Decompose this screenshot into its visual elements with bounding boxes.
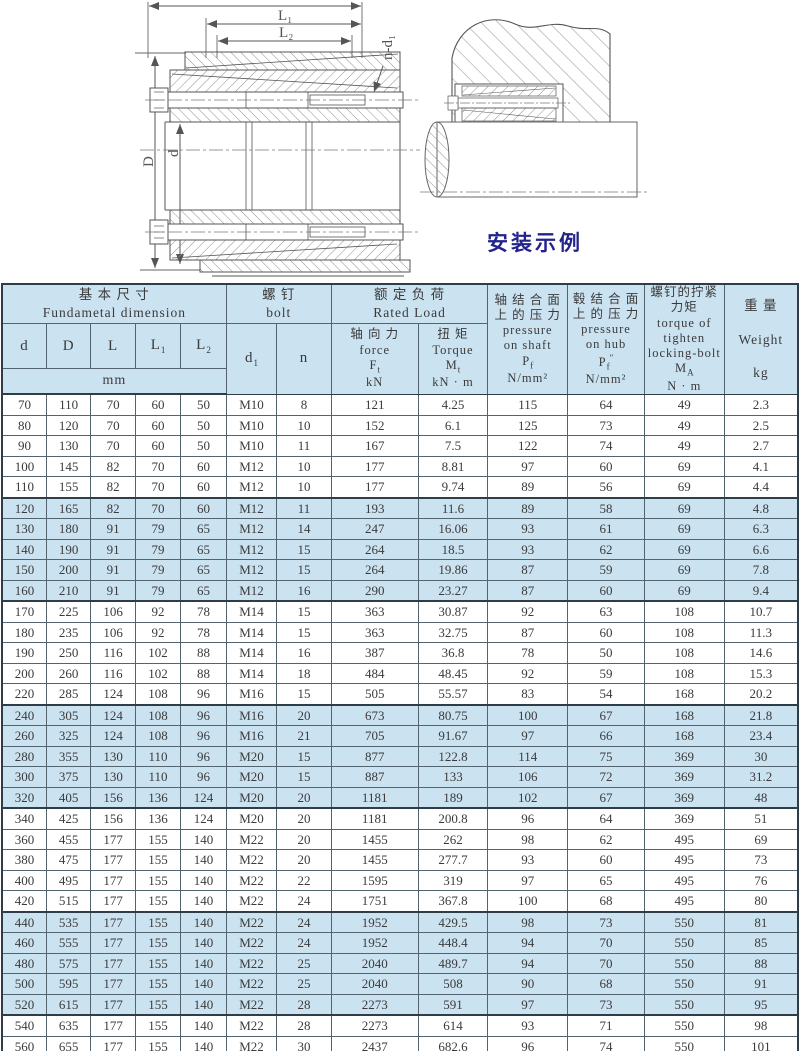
table-cell: 124 — [91, 726, 135, 747]
table-cell: 64 — [568, 808, 645, 829]
table-cell: 2.7 — [724, 436, 798, 457]
header-col-D: D — [46, 324, 90, 369]
table-cell: M22 — [226, 974, 277, 995]
table-cell: M22 — [226, 1036, 277, 1051]
table-cell: 15 — [277, 560, 332, 581]
table-row: 110155827060M12101779.748956694.4 — [2, 477, 798, 498]
table-cell: 11 — [277, 436, 332, 457]
table-cell: M20 — [226, 787, 277, 808]
table-row: 460555177155140M22241952448.4947055085 — [2, 933, 798, 954]
table-cell: 91 — [91, 539, 135, 560]
table-cell: 6.3 — [724, 519, 798, 540]
table-cell: 76 — [724, 870, 798, 891]
dim-label-D: D — [141, 156, 157, 167]
table-cell: 136 — [135, 808, 180, 829]
table-cell: 20 — [277, 705, 332, 726]
table-cell: 64 — [568, 394, 645, 415]
table-cell: 10.7 — [724, 601, 798, 622]
table-cell: 124 — [91, 705, 135, 726]
table-cell: 79 — [135, 580, 180, 601]
table-cell: 277.7 — [418, 850, 488, 871]
table-cell: 10 — [277, 456, 332, 477]
table-cell: 80 — [2, 415, 46, 436]
table-cell: M22 — [226, 829, 277, 850]
table-cell: 475 — [46, 850, 90, 871]
table-row: 500595177155140M22252040508906855091 — [2, 974, 798, 995]
table-cell: 140 — [181, 912, 226, 933]
table-cell: 18.5 — [418, 539, 488, 560]
table-cell: 305 — [46, 705, 90, 726]
table-cell: 489.7 — [418, 953, 488, 974]
table-cell: 70 — [91, 394, 135, 415]
table-cell: M12 — [226, 477, 277, 498]
table-cell: 140 — [181, 870, 226, 891]
table-cell: 240 — [2, 705, 46, 726]
table-row: 360455177155140M22201455262986249569 — [2, 829, 798, 850]
table-cell: 360 — [2, 829, 46, 850]
table-cell: 108 — [644, 622, 724, 643]
table-cell: 614 — [418, 1015, 488, 1036]
table-cell: 20 — [277, 850, 332, 871]
table-cell: 1455 — [331, 829, 418, 850]
table-cell: 87 — [488, 560, 568, 581]
table-cell: 177 — [91, 891, 135, 912]
table-cell: 140 — [181, 1015, 226, 1036]
table-cell: 73 — [724, 850, 798, 871]
table-cell: 363 — [331, 601, 418, 622]
table-cell: 125 — [488, 415, 568, 436]
table-cell: 210 — [46, 580, 90, 601]
table-cell: 155 — [135, 953, 180, 974]
table-cell: 79 — [135, 560, 180, 581]
table-cell: 70 — [2, 394, 46, 415]
table-cell: M22 — [226, 870, 277, 891]
table-cell: 15 — [277, 767, 332, 788]
table-cell: 133 — [418, 767, 488, 788]
table-cell: 425 — [46, 808, 90, 829]
table-row: 520615177155140M22282273591977355095 — [2, 994, 798, 1015]
table-cell: 25 — [277, 974, 332, 995]
table-cell: 87 — [488, 622, 568, 643]
table-cell: 108 — [135, 726, 180, 747]
table-cell: M16 — [226, 726, 277, 747]
table-cell: M12 — [226, 539, 277, 560]
table-cell: 92 — [488, 601, 568, 622]
table-cell: 106 — [91, 622, 135, 643]
table-cell: 69 — [644, 519, 724, 540]
table-cell: 96 — [181, 726, 226, 747]
table-cell: 193 — [331, 498, 418, 519]
table-cell: 177 — [91, 870, 135, 891]
table-cell: 4.8 — [724, 498, 798, 519]
table-row: 150200917965M121526419.868759697.8 — [2, 560, 798, 581]
table-cell: 280 — [2, 746, 46, 767]
table-cell: 65 — [181, 519, 226, 540]
table-cell: 110 — [46, 394, 90, 415]
table-cell: 79 — [135, 539, 180, 560]
table-cell: 320 — [2, 787, 46, 808]
table-cell: 82 — [91, 477, 135, 498]
table-cell: 93 — [488, 850, 568, 871]
table-cell: 65 — [181, 580, 226, 601]
table-cell: 115 — [488, 394, 568, 415]
table-cell: 705 — [331, 726, 418, 747]
table-cell: 92 — [135, 601, 180, 622]
table-cell: 515 — [46, 891, 90, 912]
table-cell: 19.86 — [418, 560, 488, 581]
table-cell: 15 — [277, 539, 332, 560]
table-cell: 85 — [724, 933, 798, 954]
table-cell: 97 — [488, 870, 568, 891]
table-cell: 122.8 — [418, 746, 488, 767]
table-cell: 508 — [418, 974, 488, 995]
table-cell: 49 — [644, 415, 724, 436]
table-cell: 70 — [568, 953, 645, 974]
table-cell: 11.3 — [724, 622, 798, 643]
table-cell: 108 — [135, 705, 180, 726]
table-cell: 369 — [644, 767, 724, 788]
table-cell: 106 — [91, 601, 135, 622]
table-cell: 595 — [46, 974, 90, 995]
table-cell: 24 — [277, 891, 332, 912]
table-cell: 94 — [488, 953, 568, 974]
table-cell: 15 — [277, 684, 332, 705]
table-cell: 500 — [2, 974, 46, 995]
table-cell: 200 — [2, 663, 46, 684]
table-cell: 550 — [644, 953, 724, 974]
table-cell: 124 — [91, 684, 135, 705]
table-cell: 363 — [331, 622, 418, 643]
table-cell: 80 — [724, 891, 798, 912]
table-cell: 93 — [488, 519, 568, 540]
table-cell: 8 — [277, 394, 332, 415]
table-cell: 20 — [277, 829, 332, 850]
table-cell: 122 — [488, 436, 568, 457]
table-cell: 89 — [488, 477, 568, 498]
table-cell: 59 — [568, 663, 645, 684]
table-cell: 28 — [277, 1015, 332, 1036]
table-cell: 71 — [568, 1015, 645, 1036]
table-cell: 116 — [91, 663, 135, 684]
table-cell: 69 — [644, 477, 724, 498]
table-cell: 32.75 — [418, 622, 488, 643]
table-cell: 140 — [181, 1036, 226, 1051]
table-cell: 108 — [644, 663, 724, 684]
table-cell: 73 — [568, 994, 645, 1015]
table-cell: 74 — [568, 436, 645, 457]
table-cell: 91 — [91, 580, 135, 601]
table-cell: 505 — [331, 684, 418, 705]
table-cell: 319 — [418, 870, 488, 891]
table-cell: 120 — [46, 415, 90, 436]
table-row: 28035513011096M2015877122.81147536930 — [2, 746, 798, 767]
specification-table: 基 本 尺 寸Fundametal dimension 螺 钉bolt 额 定 … — [1, 283, 799, 1051]
table-cell: 97 — [488, 726, 568, 747]
table-cell: 1455 — [331, 850, 418, 871]
table-cell: 11.6 — [418, 498, 488, 519]
table-cell: 177 — [91, 953, 135, 974]
table-cell: 130 — [91, 767, 135, 788]
table-cell: 20.2 — [724, 684, 798, 705]
table-cell: 7.8 — [724, 560, 798, 581]
header-col-n: n — [277, 324, 332, 395]
table-cell: 65 — [181, 539, 226, 560]
table-cell: 90 — [2, 436, 46, 457]
table-cell: 65 — [568, 870, 645, 891]
table-cell: 168 — [644, 726, 724, 747]
table-cell: 429.5 — [418, 912, 488, 933]
table-cell: 70 — [135, 498, 180, 519]
table-cell: 50 — [181, 394, 226, 415]
table-cell: 68 — [568, 974, 645, 995]
table-cell: 110 — [135, 767, 180, 788]
table-cell: 400 — [2, 870, 46, 891]
table-row: 80120706050M10101526.112573492.5 — [2, 415, 798, 436]
table-row: 22028512410896M161550555.57835416820.2 — [2, 684, 798, 705]
table-cell: 93 — [488, 539, 568, 560]
table-cell: 24 — [277, 933, 332, 954]
header-col-pressure-on-hub: 毂 结 合 面上 的 压 力pressureon hubPf″N/mm² — [568, 284, 645, 394]
datasheet-page: L₁ L₂ n-d₁ D d — [0, 0, 800, 1051]
table-cell: 6.1 — [418, 415, 488, 436]
installation-example-drawing: 安装示例 — [420, 20, 648, 255]
table-cell: 340 — [2, 808, 46, 829]
table-cell: M16 — [226, 705, 277, 726]
table-cell: 16 — [277, 643, 332, 664]
table-cell: M22 — [226, 891, 277, 912]
table-cell: 78 — [488, 643, 568, 664]
table-cell: 108 — [644, 643, 724, 664]
table-cell: 50 — [181, 436, 226, 457]
table-cell: 495 — [46, 870, 90, 891]
table-cell: M16 — [226, 684, 277, 705]
table-cell: 15 — [277, 601, 332, 622]
table-cell: M22 — [226, 1015, 277, 1036]
table-cell: 102 — [135, 643, 180, 664]
table-cell: 152 — [331, 415, 418, 436]
table-row: 1802351069278M141536332.75876010811.3 — [2, 622, 798, 643]
table-cell: 220 — [2, 684, 46, 705]
table-cell: M10 — [226, 394, 277, 415]
assembly-cross-section-drawing: L₁ L₂ n-d₁ D d — [135, 2, 420, 276]
table-row: 20026011610288M141848448.45925910815.3 — [2, 663, 798, 684]
table-cell: 50 — [568, 643, 645, 664]
table-row: 130180917965M121424716.069361696.3 — [2, 519, 798, 540]
header-col-L1: L1 — [135, 324, 180, 369]
table-cell: 23.27 — [418, 580, 488, 601]
table-cell: 262 — [418, 829, 488, 850]
table-cell: 177 — [331, 477, 418, 498]
table-row: 30037513011096M20158871331067236931.2 — [2, 767, 798, 788]
table-cell: 30.87 — [418, 601, 488, 622]
table-cell: 177 — [91, 850, 135, 871]
header-col-L: L — [91, 324, 135, 369]
table-cell: 140 — [181, 974, 226, 995]
table-row: 100145827060M12101778.819760694.1 — [2, 456, 798, 477]
table-cell: 108 — [644, 601, 724, 622]
table-cell: 62 — [568, 829, 645, 850]
table-cell: 2273 — [331, 1015, 418, 1036]
table-cell: 1952 — [331, 933, 418, 954]
dim-label-l1: L₁ — [278, 8, 292, 24]
installation-example-caption: 安装示例 — [487, 231, 583, 255]
table-cell: 18 — [277, 663, 332, 684]
table-cell: 155 — [135, 933, 180, 954]
table-cell: M14 — [226, 622, 277, 643]
table-cell: 235 — [46, 622, 90, 643]
table-cell: 550 — [644, 912, 724, 933]
table-cell: 1595 — [331, 870, 418, 891]
table-cell: 140 — [181, 994, 226, 1015]
table-cell: 16.06 — [418, 519, 488, 540]
table-cell: 96 — [181, 767, 226, 788]
table-cell: 887 — [331, 767, 418, 788]
table-cell: 73 — [568, 415, 645, 436]
table-cell: 1181 — [331, 787, 418, 808]
table-cell: 260 — [2, 726, 46, 747]
table-cell: 98 — [724, 1015, 798, 1036]
table-cell: 300 — [2, 767, 46, 788]
table-cell: 20 — [277, 808, 332, 829]
table-cell: M22 — [226, 850, 277, 871]
header-col-d: d — [2, 324, 46, 369]
table-cell: 16 — [277, 580, 332, 601]
table-cell: 63 — [568, 601, 645, 622]
table-cell: M22 — [226, 994, 277, 1015]
table-cell: M14 — [226, 663, 277, 684]
header-unit-mm: mm — [2, 369, 226, 395]
table-cell: 78 — [181, 622, 226, 643]
table-cell: 97 — [488, 994, 568, 1015]
table-cell: 369 — [644, 787, 724, 808]
header-col-tighten-torque: 螺钉的拧紧力矩torque oftightenlocking-boltMAN ·… — [644, 284, 724, 394]
table-row: 26032512410896M162170591.67976616823.4 — [2, 726, 798, 747]
table-cell: M12 — [226, 456, 277, 477]
table-cell: 10 — [277, 477, 332, 498]
table-cell: 15 — [277, 746, 332, 767]
table-cell: M14 — [226, 643, 277, 664]
table-cell: 89 — [488, 498, 568, 519]
table-cell: 74 — [568, 1036, 645, 1051]
header-col-d1: d1 — [226, 324, 277, 395]
table-cell: 168 — [644, 684, 724, 705]
table-cell: 96 — [488, 1036, 568, 1051]
table-cell: 101 — [724, 1036, 798, 1051]
table-cell: 375 — [46, 767, 90, 788]
dim-label-l2: L₂ — [279, 25, 293, 41]
table-cell: 2273 — [331, 994, 418, 1015]
table-cell: 155 — [46, 477, 90, 498]
table-cell: 355 — [46, 746, 90, 767]
table-cell: M12 — [226, 519, 277, 540]
table-row: 440535177155140M22241952429.5987355081 — [2, 912, 798, 933]
table-cell: 177 — [91, 933, 135, 954]
table-cell: 68 — [568, 891, 645, 912]
table-cell: 65 — [181, 560, 226, 581]
table-cell: 69 — [644, 560, 724, 581]
table-cell: M20 — [226, 767, 277, 788]
table-cell: 22 — [277, 870, 332, 891]
table-cell: 150 — [2, 560, 46, 581]
table-cell: 59 — [568, 560, 645, 581]
table-cell: 155 — [135, 974, 180, 995]
table-cell: 495 — [644, 891, 724, 912]
table-cell: 285 — [46, 684, 90, 705]
table-cell: 20 — [277, 787, 332, 808]
table-cell: 82 — [91, 498, 135, 519]
table-cell: 484 — [331, 663, 418, 684]
table-cell: 56 — [568, 477, 645, 498]
header-group-rated-load: 额 定 负 荷Rated Load — [331, 284, 488, 324]
table-cell: 540 — [2, 1015, 46, 1036]
table-cell: 60 — [568, 456, 645, 477]
table-cell: 136 — [135, 787, 180, 808]
table-cell: 9.74 — [418, 477, 488, 498]
table-row: 320405156136124M202011811891026736948 — [2, 787, 798, 808]
table-cell: 73 — [568, 912, 645, 933]
table-cell: 156 — [91, 787, 135, 808]
table-cell: 520 — [2, 994, 46, 1015]
table-cell: 591 — [418, 994, 488, 1015]
table-cell: 60 — [181, 477, 226, 498]
table-cell: 140 — [181, 933, 226, 954]
table-cell: 88 — [724, 953, 798, 974]
table-cell: 177 — [91, 974, 135, 995]
table-cell: 655 — [46, 1036, 90, 1051]
table-cell: 250 — [46, 643, 90, 664]
table-cell: 7.5 — [418, 436, 488, 457]
table-cell: 11 — [277, 498, 332, 519]
table-cell: 25 — [277, 953, 332, 974]
table-cell: 155 — [135, 891, 180, 912]
table-cell: 91.67 — [418, 726, 488, 747]
table-cell: 8.81 — [418, 456, 488, 477]
table-cell: 495 — [644, 850, 724, 871]
header-col-torque: 扭 矩TorqueMtkN · m — [418, 324, 488, 395]
table-cell: 140 — [181, 891, 226, 912]
table-cell: 155 — [135, 1036, 180, 1051]
table-cell: 4.4 — [724, 477, 798, 498]
table-cell: 60 — [135, 436, 180, 457]
table-cell: 48 — [724, 787, 798, 808]
table-cell: 55.57 — [418, 684, 488, 705]
table-cell: 480 — [2, 953, 46, 974]
table-cell: 14.6 — [724, 643, 798, 664]
table-cell: 200.8 — [418, 808, 488, 829]
table-cell: 1952 — [331, 912, 418, 933]
header-group-basic-dimension: 基 本 尺 寸Fundametal dimension — [2, 284, 226, 324]
table-cell: 70 — [568, 933, 645, 954]
table-cell: 54 — [568, 684, 645, 705]
table-cell: 110 — [135, 746, 180, 767]
table-row: 140190917965M121526418.59362696.6 — [2, 539, 798, 560]
table-header: 基 本 尺 寸Fundametal dimension 螺 钉bolt 额 定 … — [2, 284, 798, 394]
header-col-L2: L2 — [181, 324, 226, 369]
table-cell: 114 — [488, 746, 568, 767]
table-cell: 24 — [277, 912, 332, 933]
table-cell: 145 — [46, 456, 90, 477]
table-cell: 225 — [46, 601, 90, 622]
table-cell: 51 — [724, 808, 798, 829]
table-cell: 92 — [488, 663, 568, 684]
table-cell: 79 — [135, 519, 180, 540]
table-cell: 2437 — [331, 1036, 418, 1051]
table-cell: 550 — [644, 974, 724, 995]
table-cell: 180 — [2, 622, 46, 643]
table-cell: 28 — [277, 994, 332, 1015]
table-cell: 535 — [46, 912, 90, 933]
table-cell: 94 — [488, 933, 568, 954]
